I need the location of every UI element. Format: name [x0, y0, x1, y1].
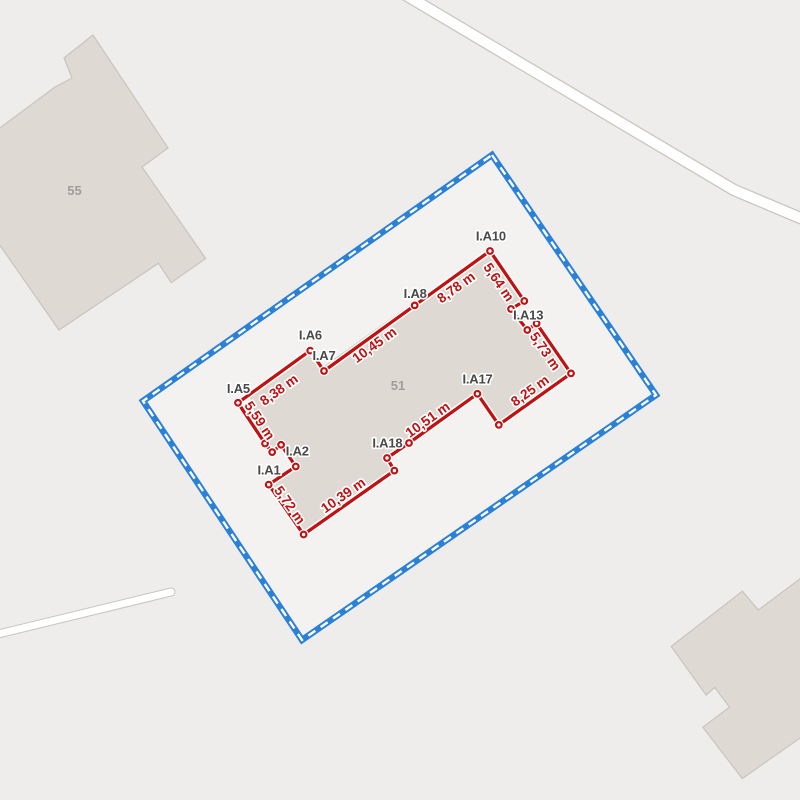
- svg-text:I.A18: I.A18: [372, 435, 402, 450]
- svg-text:I.A2: I.A2: [286, 444, 309, 459]
- svg-text:I.A10: I.A10: [476, 229, 506, 244]
- svg-text:55: 55: [67, 183, 81, 198]
- svg-text:51: 51: [391, 378, 405, 393]
- svg-text:I.A1: I.A1: [257, 462, 280, 477]
- svg-text:I.A13: I.A13: [513, 307, 543, 322]
- svg-text:I.A6: I.A6: [299, 328, 322, 343]
- svg-text:I.A5: I.A5: [227, 381, 250, 396]
- svg-text:I.A17: I.A17: [462, 372, 492, 387]
- svg-text:I.A8: I.A8: [404, 286, 427, 301]
- svg-text:I.A7: I.A7: [312, 348, 335, 363]
